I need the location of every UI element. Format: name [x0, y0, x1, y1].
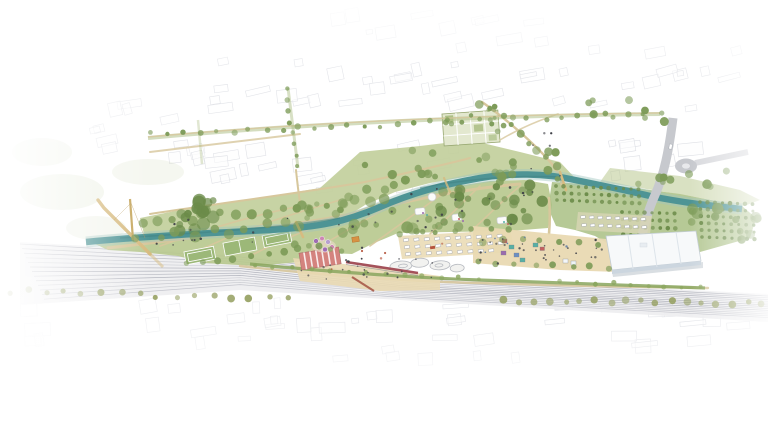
sketch-building: [274, 298, 281, 309]
parked-car: [633, 225, 638, 228]
parked-car: [589, 216, 594, 219]
tree: [295, 164, 299, 168]
orchard-tree: [607, 193, 611, 197]
person-dot: [252, 231, 254, 233]
tree: [505, 226, 511, 232]
tree: [396, 231, 402, 237]
tree: [610, 115, 615, 120]
tree: [625, 111, 631, 117]
orchard-tree: [570, 192, 574, 196]
orchard-tree: [636, 187, 640, 191]
tree: [557, 279, 562, 284]
tree: [310, 267, 315, 272]
tree: [521, 208, 527, 214]
tree: [362, 185, 371, 194]
orchard-tree: [570, 198, 574, 202]
tree: [295, 123, 301, 129]
tree: [449, 121, 454, 126]
person-dot: [194, 239, 196, 241]
orchard-tree: [585, 192, 589, 196]
tree: [493, 183, 500, 190]
person-dot: [307, 274, 309, 276]
parked-car: [426, 251, 431, 254]
person-dot: [431, 262, 433, 264]
parked-car: [642, 226, 647, 229]
tree: [432, 224, 438, 230]
tree: [290, 265, 294, 269]
parked-car: [435, 237, 440, 240]
tree: [611, 280, 616, 285]
person-dot: [191, 239, 193, 241]
person-dot: [252, 241, 254, 243]
tree: [445, 117, 450, 122]
tree: [281, 128, 286, 133]
tree: [245, 295, 253, 303]
tree: [509, 122, 514, 127]
tree: [628, 283, 632, 287]
sketch-building: [624, 156, 642, 172]
person-dot: [594, 239, 596, 241]
tree: [555, 176, 561, 182]
orchard-tree: [593, 193, 596, 196]
tree: [240, 226, 248, 234]
parked-car: [403, 238, 408, 241]
tree: [286, 295, 291, 300]
person-dot: [431, 230, 432, 231]
person-dot: [549, 145, 551, 147]
orchard-tree: [630, 194, 634, 198]
tree: [647, 284, 651, 288]
tree: [206, 211, 219, 224]
tree: [459, 120, 464, 125]
tree: [659, 111, 664, 116]
tree: [454, 185, 465, 196]
parked-car: [598, 216, 603, 219]
parked-car: [405, 252, 410, 255]
person-dot: [559, 175, 561, 177]
tree: [593, 282, 598, 287]
person-dot: [199, 237, 202, 240]
parked-car: [582, 224, 587, 227]
sketch-building: [432, 76, 458, 87]
person-dot: [523, 249, 525, 251]
person-dot: [545, 259, 547, 261]
person-dot: [524, 236, 526, 238]
tree: [482, 153, 491, 162]
orchard-tree: [635, 210, 640, 215]
person-dot: [189, 229, 191, 231]
person-dot: [173, 223, 175, 225]
tree: [224, 229, 234, 239]
tree: [609, 300, 616, 307]
tree: [262, 218, 272, 228]
tree: [642, 115, 648, 121]
person-dot: [301, 270, 302, 271]
person-dot: [361, 250, 363, 252]
parked-car: [487, 235, 492, 238]
tree: [486, 108, 490, 112]
person-dot: [398, 258, 400, 260]
tree: [381, 186, 389, 194]
person-dot: [484, 251, 486, 253]
tree: [424, 170, 430, 176]
tree: [475, 100, 484, 109]
person-dot: [410, 193, 412, 195]
person-dot: [362, 273, 365, 276]
tree: [509, 199, 518, 208]
tree: [267, 294, 272, 299]
tree: [312, 126, 316, 130]
tree: [669, 297, 676, 304]
orchard-tree: [554, 191, 559, 196]
orchard-tree: [569, 185, 572, 188]
tree: [559, 116, 564, 121]
tree: [360, 219, 368, 227]
parked-car: [616, 225, 621, 228]
parked-car: [489, 249, 494, 252]
tree: [339, 248, 344, 253]
parked-car: [615, 217, 620, 220]
tree: [211, 225, 220, 234]
tree: [483, 219, 490, 226]
parked-car: [599, 224, 604, 227]
parked-car: [416, 252, 421, 255]
orchard-tree: [658, 211, 661, 214]
tree: [564, 300, 569, 305]
tree: [285, 108, 290, 113]
tree: [521, 213, 532, 224]
tree: [537, 196, 548, 207]
tree: [168, 216, 175, 223]
tree: [625, 96, 633, 104]
person-dot: [380, 257, 382, 259]
parked-car: [466, 236, 471, 239]
tree: [152, 216, 162, 226]
person-dot: [509, 223, 512, 226]
person-dot: [523, 195, 525, 197]
tree: [477, 117, 482, 122]
person-dot: [482, 239, 484, 241]
tree: [465, 195, 471, 201]
tree: [576, 239, 583, 246]
tree: [576, 298, 582, 304]
person-dot: [342, 269, 344, 271]
tree: [458, 211, 466, 219]
tree: [452, 228, 458, 234]
tree: [595, 242, 601, 248]
sketch-building: [253, 302, 260, 314]
person-dot: [591, 256, 593, 258]
parked-car: [446, 243, 451, 246]
orchard-tree: [577, 192, 581, 196]
parked-car: [457, 250, 462, 253]
tree: [586, 262, 593, 269]
tree: [263, 209, 273, 219]
person-dot: [183, 240, 185, 242]
tree: [176, 221, 183, 228]
tree: [635, 181, 641, 187]
sketch-building: [482, 88, 504, 100]
person-dot: [479, 251, 481, 253]
parked-car: [445, 236, 450, 239]
tree: [231, 210, 241, 220]
event-hall: [606, 231, 703, 277]
tree: [429, 149, 437, 157]
masterplan-canvas: [0, 0, 768, 439]
person-dot: [461, 210, 463, 212]
orchard-tree: [658, 218, 663, 223]
orchard-tree: [672, 211, 676, 215]
tree: [660, 179, 666, 185]
parked-car: [468, 250, 473, 253]
tree: [440, 218, 447, 225]
tree: [413, 228, 420, 235]
tree: [306, 243, 312, 249]
tree: [553, 162, 561, 170]
parked-car: [404, 245, 409, 248]
tree: [247, 209, 257, 219]
tree: [502, 196, 508, 202]
tree: [433, 230, 438, 235]
tree: [363, 124, 367, 128]
orchard-tree: [615, 187, 618, 190]
parked-car: [437, 251, 442, 254]
tree: [295, 154, 299, 158]
person-dot: [322, 266, 324, 268]
orchard-tree: [599, 186, 603, 190]
tree: [641, 107, 649, 115]
tree: [499, 296, 507, 304]
person-dot: [494, 238, 496, 240]
sketch-building: [421, 83, 430, 95]
tree: [332, 210, 340, 218]
tree: [328, 124, 334, 130]
tree: [507, 214, 518, 225]
tree: [476, 157, 482, 163]
tree: [590, 97, 596, 103]
tree: [546, 298, 554, 306]
tree: [556, 239, 562, 245]
tree: [511, 261, 516, 266]
tree: [602, 111, 608, 117]
tree: [495, 128, 501, 134]
tree: [660, 117, 669, 126]
person-dot: [345, 259, 347, 261]
person-dot: [489, 241, 491, 243]
person-dot: [172, 244, 174, 246]
tree: [492, 108, 496, 112]
sketch-building: [443, 303, 469, 309]
orchard-tree: [561, 184, 566, 189]
person-dot: [386, 273, 388, 275]
sketch-building: [258, 161, 277, 171]
tree: [280, 205, 287, 212]
tree: [571, 264, 576, 269]
tree: [501, 123, 507, 129]
tree: [574, 113, 580, 119]
tree: [293, 221, 304, 232]
orchard-tree: [622, 194, 625, 197]
tree: [390, 181, 398, 189]
tree: [281, 217, 291, 227]
sketch-building: [552, 96, 565, 106]
person-dot: [329, 264, 331, 266]
tree: [415, 165, 422, 172]
sketch-building: [339, 98, 363, 106]
orchard-tree: [620, 210, 624, 214]
tree: [439, 276, 444, 281]
tree: [266, 251, 272, 257]
sketch-building: [619, 138, 636, 153]
orchard-tree: [673, 219, 677, 223]
tree: [489, 121, 494, 126]
tree: [395, 121, 401, 127]
person-dot: [563, 244, 565, 246]
person-dot: [434, 216, 436, 218]
masterplan-rendering: [0, 0, 768, 439]
person-dot: [431, 277, 433, 279]
person-dot: [575, 252, 577, 254]
orchard-tree: [658, 226, 662, 230]
tree: [531, 298, 538, 305]
tree: [344, 122, 349, 127]
tree: [347, 270, 351, 274]
orchard-tree: [578, 199, 581, 202]
sketch-building: [369, 82, 385, 95]
orchard-tree: [665, 212, 668, 215]
parked-car: [641, 218, 646, 221]
person-dot: [553, 249, 554, 250]
tree: [526, 141, 531, 146]
tree: [192, 196, 205, 209]
tree: [622, 296, 630, 304]
person-dot: [479, 259, 482, 262]
person-dot: [531, 191, 533, 193]
tree: [365, 196, 376, 207]
person-dot: [326, 278, 327, 279]
tree: [516, 299, 522, 305]
tree: [328, 246, 333, 251]
tree: [532, 146, 541, 155]
person-dot: [357, 265, 359, 267]
person-dot: [441, 214, 443, 216]
person-dot: [351, 225, 354, 228]
tree: [432, 174, 438, 180]
person-dot: [408, 205, 410, 207]
tree: [287, 120, 292, 125]
person-dot: [436, 188, 438, 190]
person-dot: [417, 220, 419, 222]
tree: [492, 116, 496, 120]
person-dot: [550, 132, 552, 134]
orchard-tree: [637, 201, 641, 205]
tree: [638, 297, 643, 302]
sketch-building: [220, 174, 230, 184]
person-dot: [441, 243, 443, 245]
orchard-tree: [577, 185, 580, 188]
tree: [158, 234, 165, 241]
person-dot: [596, 247, 598, 249]
orchard-tree: [650, 211, 653, 214]
person-dot: [544, 254, 546, 256]
person-dot: [507, 243, 509, 245]
tree: [315, 243, 322, 250]
tree: [270, 266, 274, 270]
orchard-tree: [651, 226, 655, 230]
parked-car: [476, 235, 481, 238]
person-dot: [347, 260, 349, 262]
orchard-tree: [563, 199, 566, 202]
orchard-tree: [607, 200, 611, 204]
tree: [450, 192, 456, 198]
tree: [549, 261, 556, 268]
parked-car: [606, 216, 611, 219]
tree: [489, 226, 495, 232]
person-dot: [543, 132, 545, 134]
parked-car: [415, 245, 420, 248]
sketch-building: [390, 73, 413, 84]
tree: [379, 194, 390, 205]
tree: [349, 219, 360, 230]
person-dot: [530, 168, 532, 170]
orchard-tree: [600, 193, 604, 197]
sketch-building: [608, 140, 616, 147]
person-dot: [535, 249, 537, 251]
person-dot: [497, 262, 499, 264]
tree: [490, 200, 500, 210]
tree: [425, 215, 432, 222]
person-dot: [543, 257, 545, 259]
tree: [409, 147, 416, 154]
orchard-tree: [562, 191, 566, 195]
tree: [419, 273, 424, 278]
person-dot: [367, 213, 369, 215]
person-dot: [415, 258, 417, 260]
tree: [427, 118, 433, 124]
tree: [294, 245, 301, 252]
tree: [510, 114, 516, 120]
orchard-tree: [630, 201, 635, 206]
parked-car: [455, 236, 460, 239]
orchard-tree: [606, 186, 611, 191]
person-dot: [594, 256, 596, 258]
parked-car: [581, 216, 586, 219]
tree: [536, 237, 542, 243]
orchard-tree: [637, 194, 641, 198]
tree: [524, 179, 535, 190]
person-dot: [367, 272, 368, 273]
tree: [651, 300, 658, 307]
tree: [280, 248, 288, 256]
tree: [265, 127, 271, 133]
person-dot: [361, 258, 363, 260]
tree: [420, 229, 425, 234]
person-dot: [366, 276, 367, 277]
person-dot: [331, 268, 333, 270]
orchard-tree: [555, 198, 559, 202]
tree: [291, 130, 295, 134]
sketch-building: [308, 93, 321, 108]
tree: [411, 120, 417, 126]
tree: [438, 187, 448, 197]
parked-car: [624, 217, 629, 220]
tree: [456, 274, 461, 279]
person-dot: [601, 248, 603, 250]
tree: [350, 195, 360, 205]
person-dot: [489, 198, 491, 200]
person-dot: [187, 219, 189, 221]
parked-car: [456, 243, 461, 246]
